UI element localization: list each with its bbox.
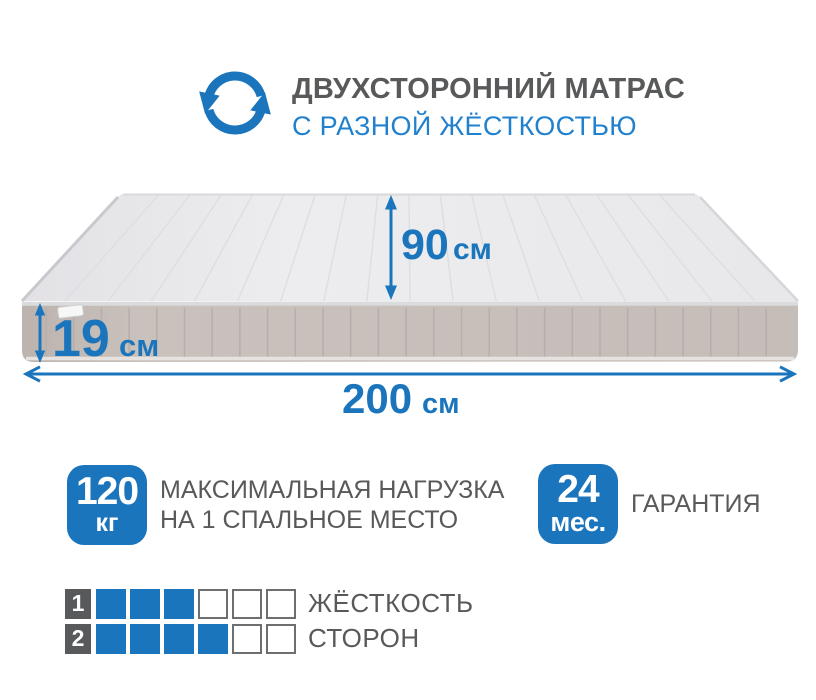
length-value: 200 [342, 375, 412, 422]
firmness-row-side-1: 1ЖЁСТКОСТЬ [65, 588, 474, 619]
side-number-box: 1 [65, 589, 91, 619]
warranty-caption-line1: ГАРАНТИЯ [631, 489, 761, 519]
length-unit: см [422, 388, 460, 420]
max-load-value: 120 [76, 473, 138, 510]
max-load-unit: кг [96, 510, 119, 536]
page-subtitle: С РАЗНОЙ ЖЁСТКОСТЬЮ [292, 111, 685, 142]
depth-value: 90 [401, 221, 449, 269]
warranty-value: 24 [557, 471, 598, 508]
firmness-label-line: ЖЁСТКОСТЬ [308, 588, 474, 619]
height-unit: см [119, 328, 159, 363]
firmness-square-empty [266, 624, 296, 654]
firmness-square-filled [198, 624, 228, 654]
firmness-label-line: СТОРОН [308, 623, 420, 654]
firmness-square-filled [96, 624, 126, 654]
warranty-unit: мес. [550, 508, 605, 536]
rotate-arrows-icon [196, 61, 276, 145]
max-load-badge-group: 120 кг МАКСИМАЛЬНАЯ НАГРУЗКА НА 1 СПАЛЬН… [67, 465, 504, 545]
firmness-square-filled [130, 624, 160, 654]
firmness-square-filled [130, 589, 160, 619]
max-load-caption: МАКСИМАЛЬНАЯ НАГРУЗКА НА 1 СПАЛЬНОЕ МЕСТ… [160, 475, 504, 535]
firmness-square-empty [266, 589, 296, 619]
warranty-caption: ГАРАНТИЯ [631, 489, 761, 519]
infographic-canvas: ДВУХСТОРОННИЙ МАТРАС С РАЗНОЙ ЖЁСТКОСТЬЮ [0, 0, 816, 700]
page-title: ДВУХСТОРОННИЙ МАТРАС [292, 73, 685, 106]
firmness-scale: 1ЖЁСТКОСТЬ2СТОРОН [65, 588, 474, 654]
firmness-square-filled [164, 589, 194, 619]
firmness-row-side-2: 2СТОРОН [65, 623, 474, 654]
max-load-caption-line1: МАКСИМАЛЬНАЯ НАГРУЗКА [160, 475, 504, 505]
firmness-square-empty [198, 589, 228, 619]
depth-unit: см [453, 233, 492, 266]
side-number-box: 2 [65, 624, 91, 654]
header: ДВУХСТОРОННИЙ МАТРАС С РАЗНОЙ ЖЁСТКОСТЬЮ [292, 73, 685, 142]
warranty-badge: 24 мес. [538, 464, 618, 544]
max-load-caption-line2: НА 1 СПАЛЬНОЕ МЕСТО [160, 505, 504, 535]
mattress-illustration: 90 см 19 см 200 см [0, 170, 816, 430]
firmness-square-filled [164, 624, 194, 654]
firmness-square-empty [232, 589, 262, 619]
firmness-square-filled [96, 589, 126, 619]
firmness-square-empty [232, 624, 262, 654]
warranty-badge-group: 24 мес. ГАРАНТИЯ [538, 464, 761, 544]
height-value: 19 [52, 310, 110, 368]
max-load-badge: 120 кг [67, 465, 147, 545]
